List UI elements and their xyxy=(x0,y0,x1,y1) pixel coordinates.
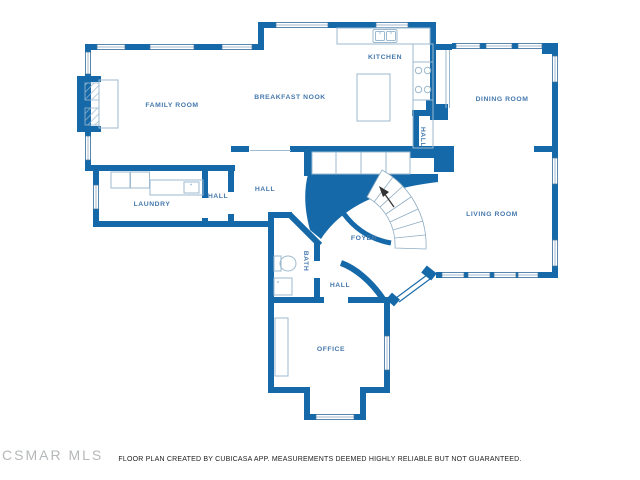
washer-dryer-icon xyxy=(111,172,150,188)
window xyxy=(494,273,516,278)
window xyxy=(150,45,194,50)
room-label-hall-laundry: HALL xyxy=(208,193,228,200)
curved-staircase xyxy=(305,146,440,249)
room-label-living-room: LIVING ROOM xyxy=(466,211,518,218)
laundry-top-wall xyxy=(85,165,235,171)
dining-bottom-stub xyxy=(534,146,558,152)
west-wall-bath-office xyxy=(268,215,274,393)
entry-curved-wall xyxy=(341,263,383,299)
window xyxy=(518,44,542,49)
room-label-hall-lower: HALL xyxy=(330,282,350,289)
bath-door-gap xyxy=(314,261,320,278)
window xyxy=(553,56,558,82)
window xyxy=(518,273,538,278)
front-double-door-icon xyxy=(396,275,430,302)
window xyxy=(486,44,512,49)
window xyxy=(468,273,490,278)
dining-partition xyxy=(446,50,450,108)
nook-stub-left xyxy=(231,146,249,152)
bay-window xyxy=(316,415,354,420)
upper-hall-right-stub xyxy=(437,110,443,118)
toilet-icon xyxy=(274,256,296,271)
disclaimer-text: FLOOR PLAN CREATED BY CUBICASA APP. MEAS… xyxy=(0,456,640,463)
laundry-door-gap xyxy=(202,198,208,218)
office-door-gap xyxy=(324,297,348,303)
kitchen-island xyxy=(357,74,390,121)
room-label-family-room: FAMILY ROOM xyxy=(145,102,198,109)
room-label-hall-center: HALL xyxy=(255,186,275,193)
floor-plan-drawing: FAMILY ROOM BREAKFAST NOOK KITCHEN DININ… xyxy=(0,0,640,480)
hall-door-gap xyxy=(228,192,234,214)
window xyxy=(385,336,390,370)
closet-row xyxy=(312,152,410,174)
upper-hall-left-wall xyxy=(413,110,419,152)
room-label-foyer: FOYER xyxy=(351,235,377,242)
window xyxy=(553,240,558,266)
window xyxy=(276,23,328,28)
office-bottom-left-wall xyxy=(268,387,310,393)
room-label-dining-room: DINING ROOM xyxy=(476,96,529,103)
kitchen-counter-top xyxy=(337,28,430,44)
window xyxy=(442,273,464,278)
room-label-breakfast-nook: BREAKFAST NOOK xyxy=(254,94,326,101)
window xyxy=(86,136,91,160)
window xyxy=(553,158,558,184)
entry-door-post-left xyxy=(389,296,397,303)
window xyxy=(86,52,91,74)
room-label-hall-upper: HALL xyxy=(419,127,426,147)
floor-plan-page: FAMILY ROOM BREAKFAST NOOK KITCHEN DININ… xyxy=(0,0,640,480)
laundry-counter xyxy=(150,180,203,195)
window xyxy=(456,44,480,49)
office-desk xyxy=(275,318,288,376)
room-label-kitchen: KITCHEN xyxy=(368,54,402,61)
kitchen-dining-stub xyxy=(436,44,452,50)
bath-sink-icon xyxy=(274,278,292,295)
room-label-bath: BATH xyxy=(302,251,309,272)
room-label-office: OFFICE xyxy=(317,346,345,353)
laundry-bottom-wall xyxy=(93,221,274,227)
window xyxy=(94,185,99,209)
window xyxy=(376,23,408,28)
window xyxy=(222,45,252,50)
room-label-laundry: LAUNDRY xyxy=(134,201,171,208)
kitchen-sink-icon xyxy=(373,30,397,43)
window xyxy=(97,45,125,50)
fireplace-icon xyxy=(77,76,118,132)
